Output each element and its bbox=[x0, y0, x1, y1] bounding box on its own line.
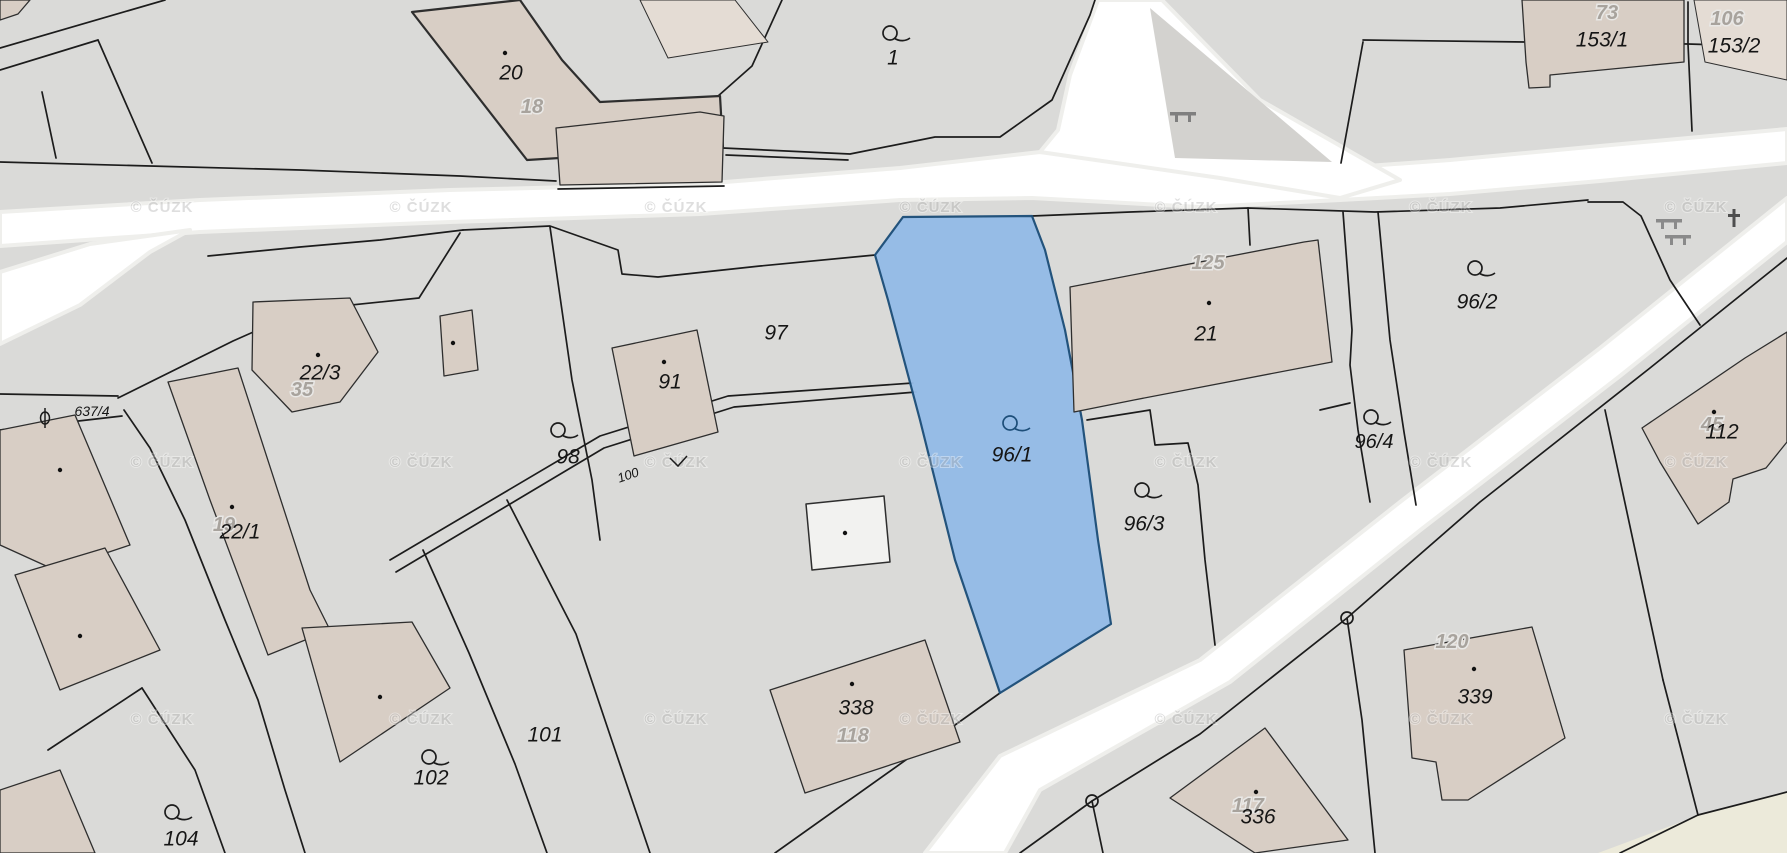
building-small-east-of-22-3 bbox=[440, 310, 478, 376]
parcel-label-96-4: 96/4 bbox=[1355, 431, 1394, 453]
cadastral-map-viewport[interactable]: © ČÚZK© ČÚZK© ČÚZK© ČÚZK© ČÚZK© ČÚZK© ČÚ… bbox=[0, 0, 1787, 853]
parcel-label-20: 20 bbox=[498, 62, 523, 85]
parcel-label-153-1: 153/1 bbox=[1576, 29, 1629, 52]
building-number-73: 73 bbox=[1596, 2, 1618, 24]
parcel-label-637-4: 637/4 bbox=[74, 403, 109, 419]
watermark: © ČÚZK bbox=[900, 710, 963, 728]
watermark: © ČÚZK bbox=[1410, 710, 1473, 728]
building-dot-6 bbox=[850, 682, 854, 686]
parcel-label-338: 338 bbox=[838, 697, 873, 720]
watermark: © ČÚZK bbox=[131, 198, 194, 216]
building-dot-0 bbox=[503, 51, 507, 55]
watermark: © ČÚZK bbox=[1410, 198, 1473, 216]
watermark: © ČÚZK bbox=[390, 198, 453, 216]
parcel-label-96-1: 96/1 bbox=[992, 444, 1033, 467]
building-number-125: 125 bbox=[1191, 252, 1225, 274]
parcel-label-91: 91 bbox=[658, 371, 681, 394]
parcel-label-102: 102 bbox=[413, 767, 448, 790]
parcel-label-1: 1 bbox=[887, 47, 899, 70]
parcel-label-104: 104 bbox=[163, 828, 198, 851]
watermark: © ČÚZK bbox=[645, 198, 708, 216]
parcel-label-22-3: 22/3 bbox=[299, 362, 341, 385]
building-number-120: 120 bbox=[1435, 631, 1468, 653]
building-dot-2 bbox=[230, 505, 234, 509]
watermark: © ČÚZK bbox=[131, 453, 194, 471]
watermark: © ČÚZK bbox=[645, 453, 708, 471]
parcel-label-22-1: 22/1 bbox=[219, 521, 261, 544]
parcel-label-112: 112 bbox=[1705, 421, 1739, 444]
parcel-label-96-3: 96/3 bbox=[1124, 513, 1165, 536]
watermark: © ČÚZK bbox=[390, 710, 453, 728]
parcel-label-96-2: 96/2 bbox=[1457, 291, 1498, 314]
building-number-118: 118 bbox=[837, 725, 870, 747]
watermark: © ČÚZK bbox=[645, 710, 708, 728]
watermark: © ČÚZK bbox=[1155, 453, 1218, 471]
building-white-court bbox=[806, 496, 890, 570]
watermark: © ČÚZK bbox=[1665, 198, 1728, 216]
watermark: © ČÚZK bbox=[1665, 710, 1728, 728]
parcel-label-101: 101 bbox=[527, 724, 562, 747]
building-dot-1 bbox=[316, 353, 320, 357]
building-number-18: 18 bbox=[521, 96, 544, 118]
building-dot-13 bbox=[378, 695, 382, 699]
parcel-label-153-2: 153/2 bbox=[1708, 35, 1761, 58]
watermark: © ČÚZK bbox=[131, 710, 194, 728]
watermark: © ČÚZK bbox=[900, 453, 963, 471]
watermark: © ČÚZK bbox=[1155, 198, 1218, 216]
building-dot-8 bbox=[1254, 790, 1258, 794]
watermark: © ČÚZK bbox=[390, 453, 453, 471]
watermark: © ČÚZK bbox=[1155, 710, 1218, 728]
parcel-label-98: 98 bbox=[556, 446, 580, 469]
parcel-label-21: 21 bbox=[1193, 323, 1217, 346]
parcel-label-339: 339 bbox=[1457, 686, 1492, 709]
building-dot-9 bbox=[1472, 667, 1476, 671]
building-dot-12 bbox=[78, 634, 82, 638]
building-dot-5 bbox=[843, 531, 847, 535]
cadastral-map[interactable]: © ČÚZK© ČÚZK© ČÚZK© ČÚZK© ČÚZK© ČÚZK© ČÚ… bbox=[0, 0, 1787, 853]
building-dot-3 bbox=[451, 341, 455, 345]
watermark: © ČÚZK bbox=[900, 198, 963, 216]
parcel-label-97: 97 bbox=[764, 322, 789, 345]
building-dot-11 bbox=[58, 468, 62, 472]
watermark: © ČÚZK bbox=[1410, 453, 1473, 471]
watermark: © ČÚZK bbox=[1665, 453, 1728, 471]
building-dot-7 bbox=[1207, 301, 1211, 305]
parcel-label-336: 336 bbox=[1240, 806, 1275, 829]
building-number-106: 106 bbox=[1710, 8, 1744, 30]
building-dot-4 bbox=[662, 360, 666, 364]
